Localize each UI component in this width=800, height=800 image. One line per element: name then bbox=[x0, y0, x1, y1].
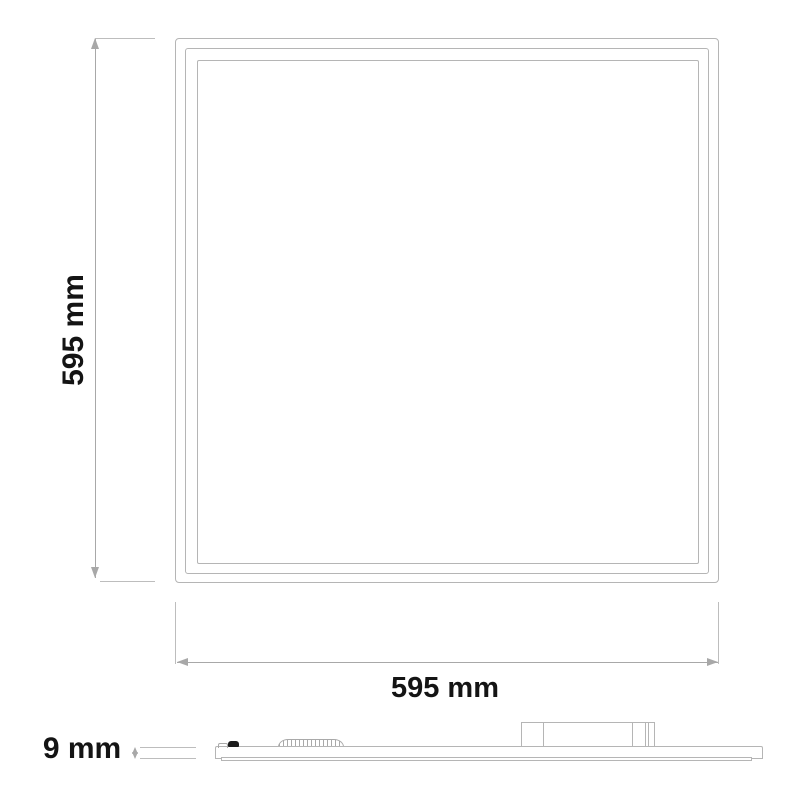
width-extension-line-right bbox=[718, 602, 719, 664]
driver-box-divider bbox=[645, 723, 646, 747]
arrow-left-icon bbox=[177, 658, 188, 666]
arrow-up-icon bbox=[91, 38, 99, 49]
driver-box-divider bbox=[648, 723, 649, 747]
thickness-extension-line-top bbox=[140, 747, 196, 748]
height-dimension-line bbox=[95, 38, 96, 578]
panel-side-clip-bracket bbox=[218, 743, 228, 748]
driver-box-divider bbox=[632, 723, 633, 747]
height-dimension-label: 595 mm bbox=[54, 230, 94, 430]
width-extension-line-left bbox=[175, 602, 176, 664]
width-dimension-line bbox=[177, 662, 718, 663]
panel-side-clip bbox=[228, 741, 239, 747]
thickness-extension-line-bottom bbox=[140, 758, 196, 759]
height-extension-line-bottom bbox=[100, 581, 155, 582]
width-dimension-label: 595 mm bbox=[345, 672, 545, 704]
thickness-dimension-label: 9 mm bbox=[12, 733, 152, 765]
panel-inner-frame bbox=[197, 60, 699, 564]
arrow-right-icon bbox=[707, 658, 718, 666]
driver-box-divider bbox=[543, 723, 544, 747]
arrow-down-small-icon bbox=[132, 752, 138, 759]
arrow-down-icon bbox=[91, 567, 99, 578]
height-extension-line-top bbox=[95, 38, 155, 39]
led-driver-box bbox=[521, 722, 655, 747]
panel-dimension-diagram: 595 mm 595 mm 9 mm bbox=[0, 0, 800, 800]
panel-side-diffuser-lip bbox=[221, 757, 752, 761]
